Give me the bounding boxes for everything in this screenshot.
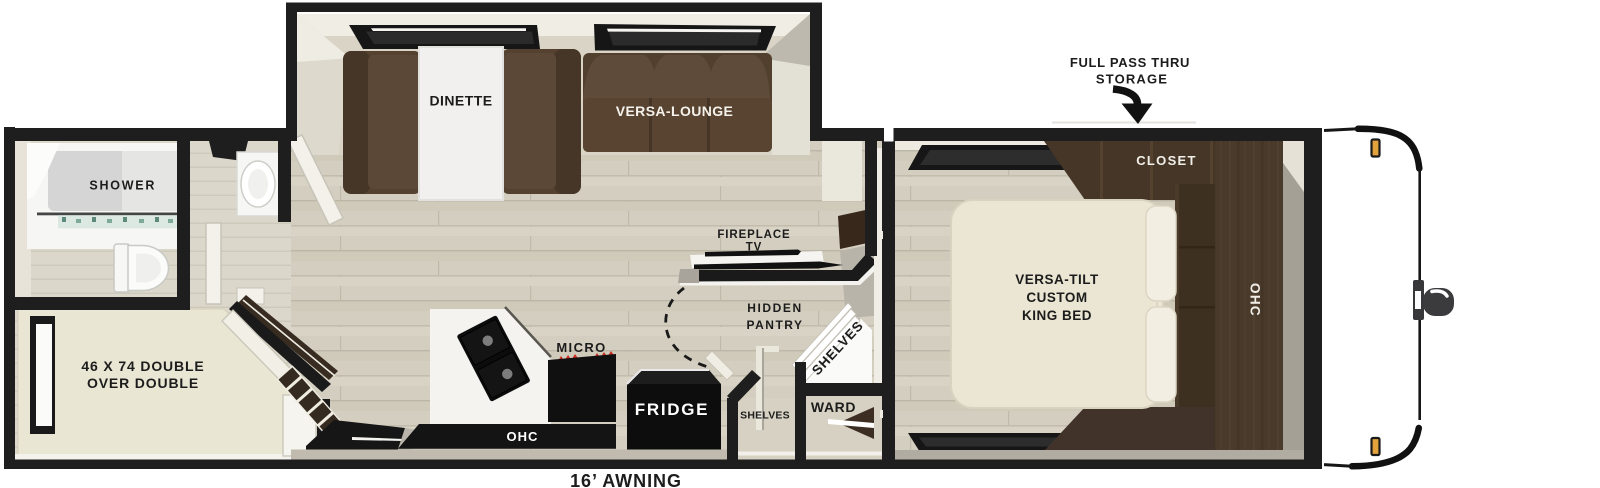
svg-text:VERSA-TILT: VERSA-TILT: [1015, 272, 1099, 287]
svg-text:SHOWER: SHOWER: [89, 179, 156, 193]
svg-text:CUSTOM: CUSTOM: [1026, 290, 1087, 305]
svg-text:OVER DOUBLE: OVER DOUBLE: [87, 375, 199, 391]
svg-text:FULL PASS THRU: FULL PASS THRU: [1070, 55, 1190, 70]
svg-text:WARD: WARD: [811, 399, 856, 415]
svg-text:16’ AWNING: 16’ AWNING: [570, 471, 682, 488]
svg-text:FRIDGE: FRIDGE: [635, 400, 709, 419]
svg-text:HIDDEN: HIDDEN: [747, 301, 803, 315]
svg-text:OHC: OHC: [1248, 283, 1263, 317]
svg-text:KING BED: KING BED: [1022, 308, 1092, 323]
svg-text:CLOSET: CLOSET: [1136, 153, 1197, 168]
svg-text:OHC: OHC: [507, 429, 539, 444]
svg-text:DINETTE: DINETTE: [429, 93, 492, 109]
svg-text:SHELVES: SHELVES: [740, 410, 790, 422]
svg-text:MICRO: MICRO: [556, 340, 606, 355]
svg-text:VERSA-LOUNGE: VERSA-LOUNGE: [616, 103, 734, 119]
svg-text:STORAGE: STORAGE: [1096, 72, 1168, 87]
svg-text:FIREPLACE: FIREPLACE: [717, 229, 790, 241]
svg-text:46 X 74 DOUBLE: 46 X 74 DOUBLE: [81, 358, 204, 374]
svg-text:TV: TV: [746, 242, 763, 254]
svg-text:PANTRY: PANTRY: [747, 318, 804, 332]
